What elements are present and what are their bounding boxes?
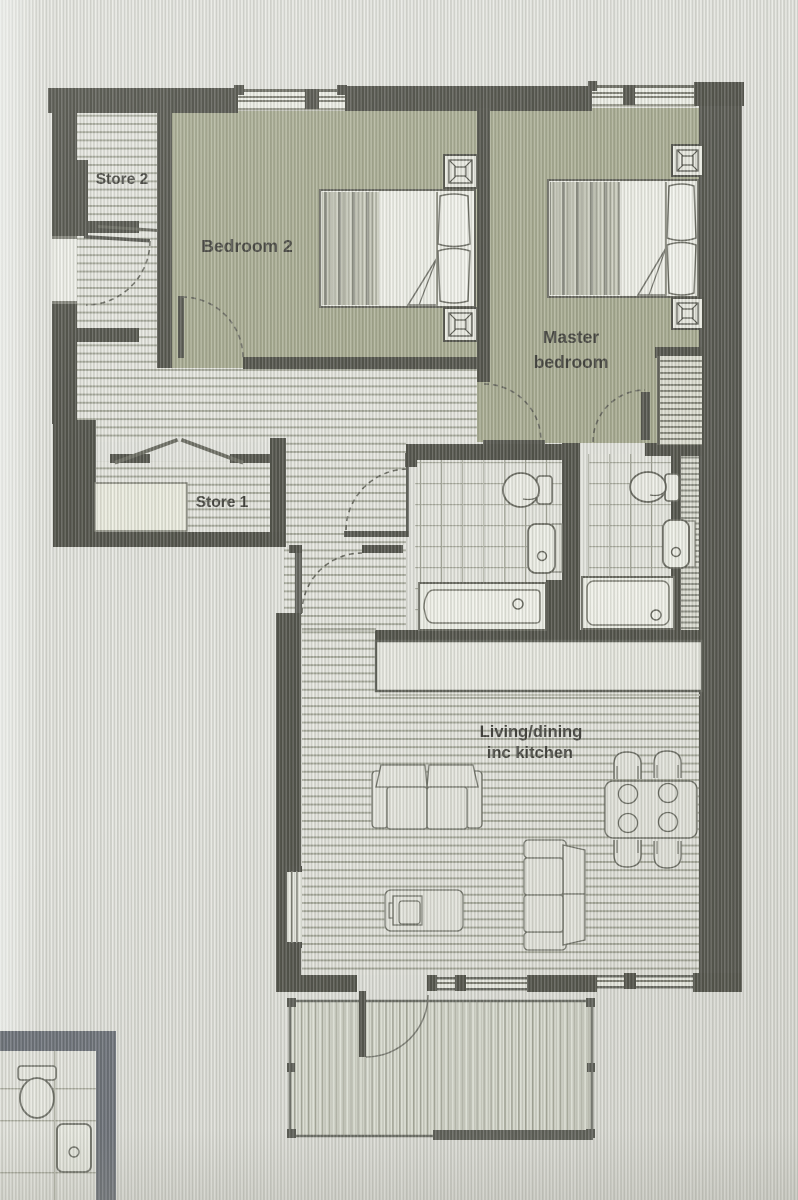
svg-text:Store 2: Store 2: [96, 171, 149, 188]
svg-text:Store 1: Store 1: [196, 494, 249, 511]
svg-text:Living/dining: Living/dining: [480, 723, 583, 741]
svg-text:bedroom: bedroom: [534, 352, 609, 372]
svg-text:inc kitchen: inc kitchen: [487, 744, 573, 762]
svg-text:Bedroom 2: Bedroom 2: [201, 236, 293, 256]
svg-text:Master: Master: [543, 327, 600, 347]
